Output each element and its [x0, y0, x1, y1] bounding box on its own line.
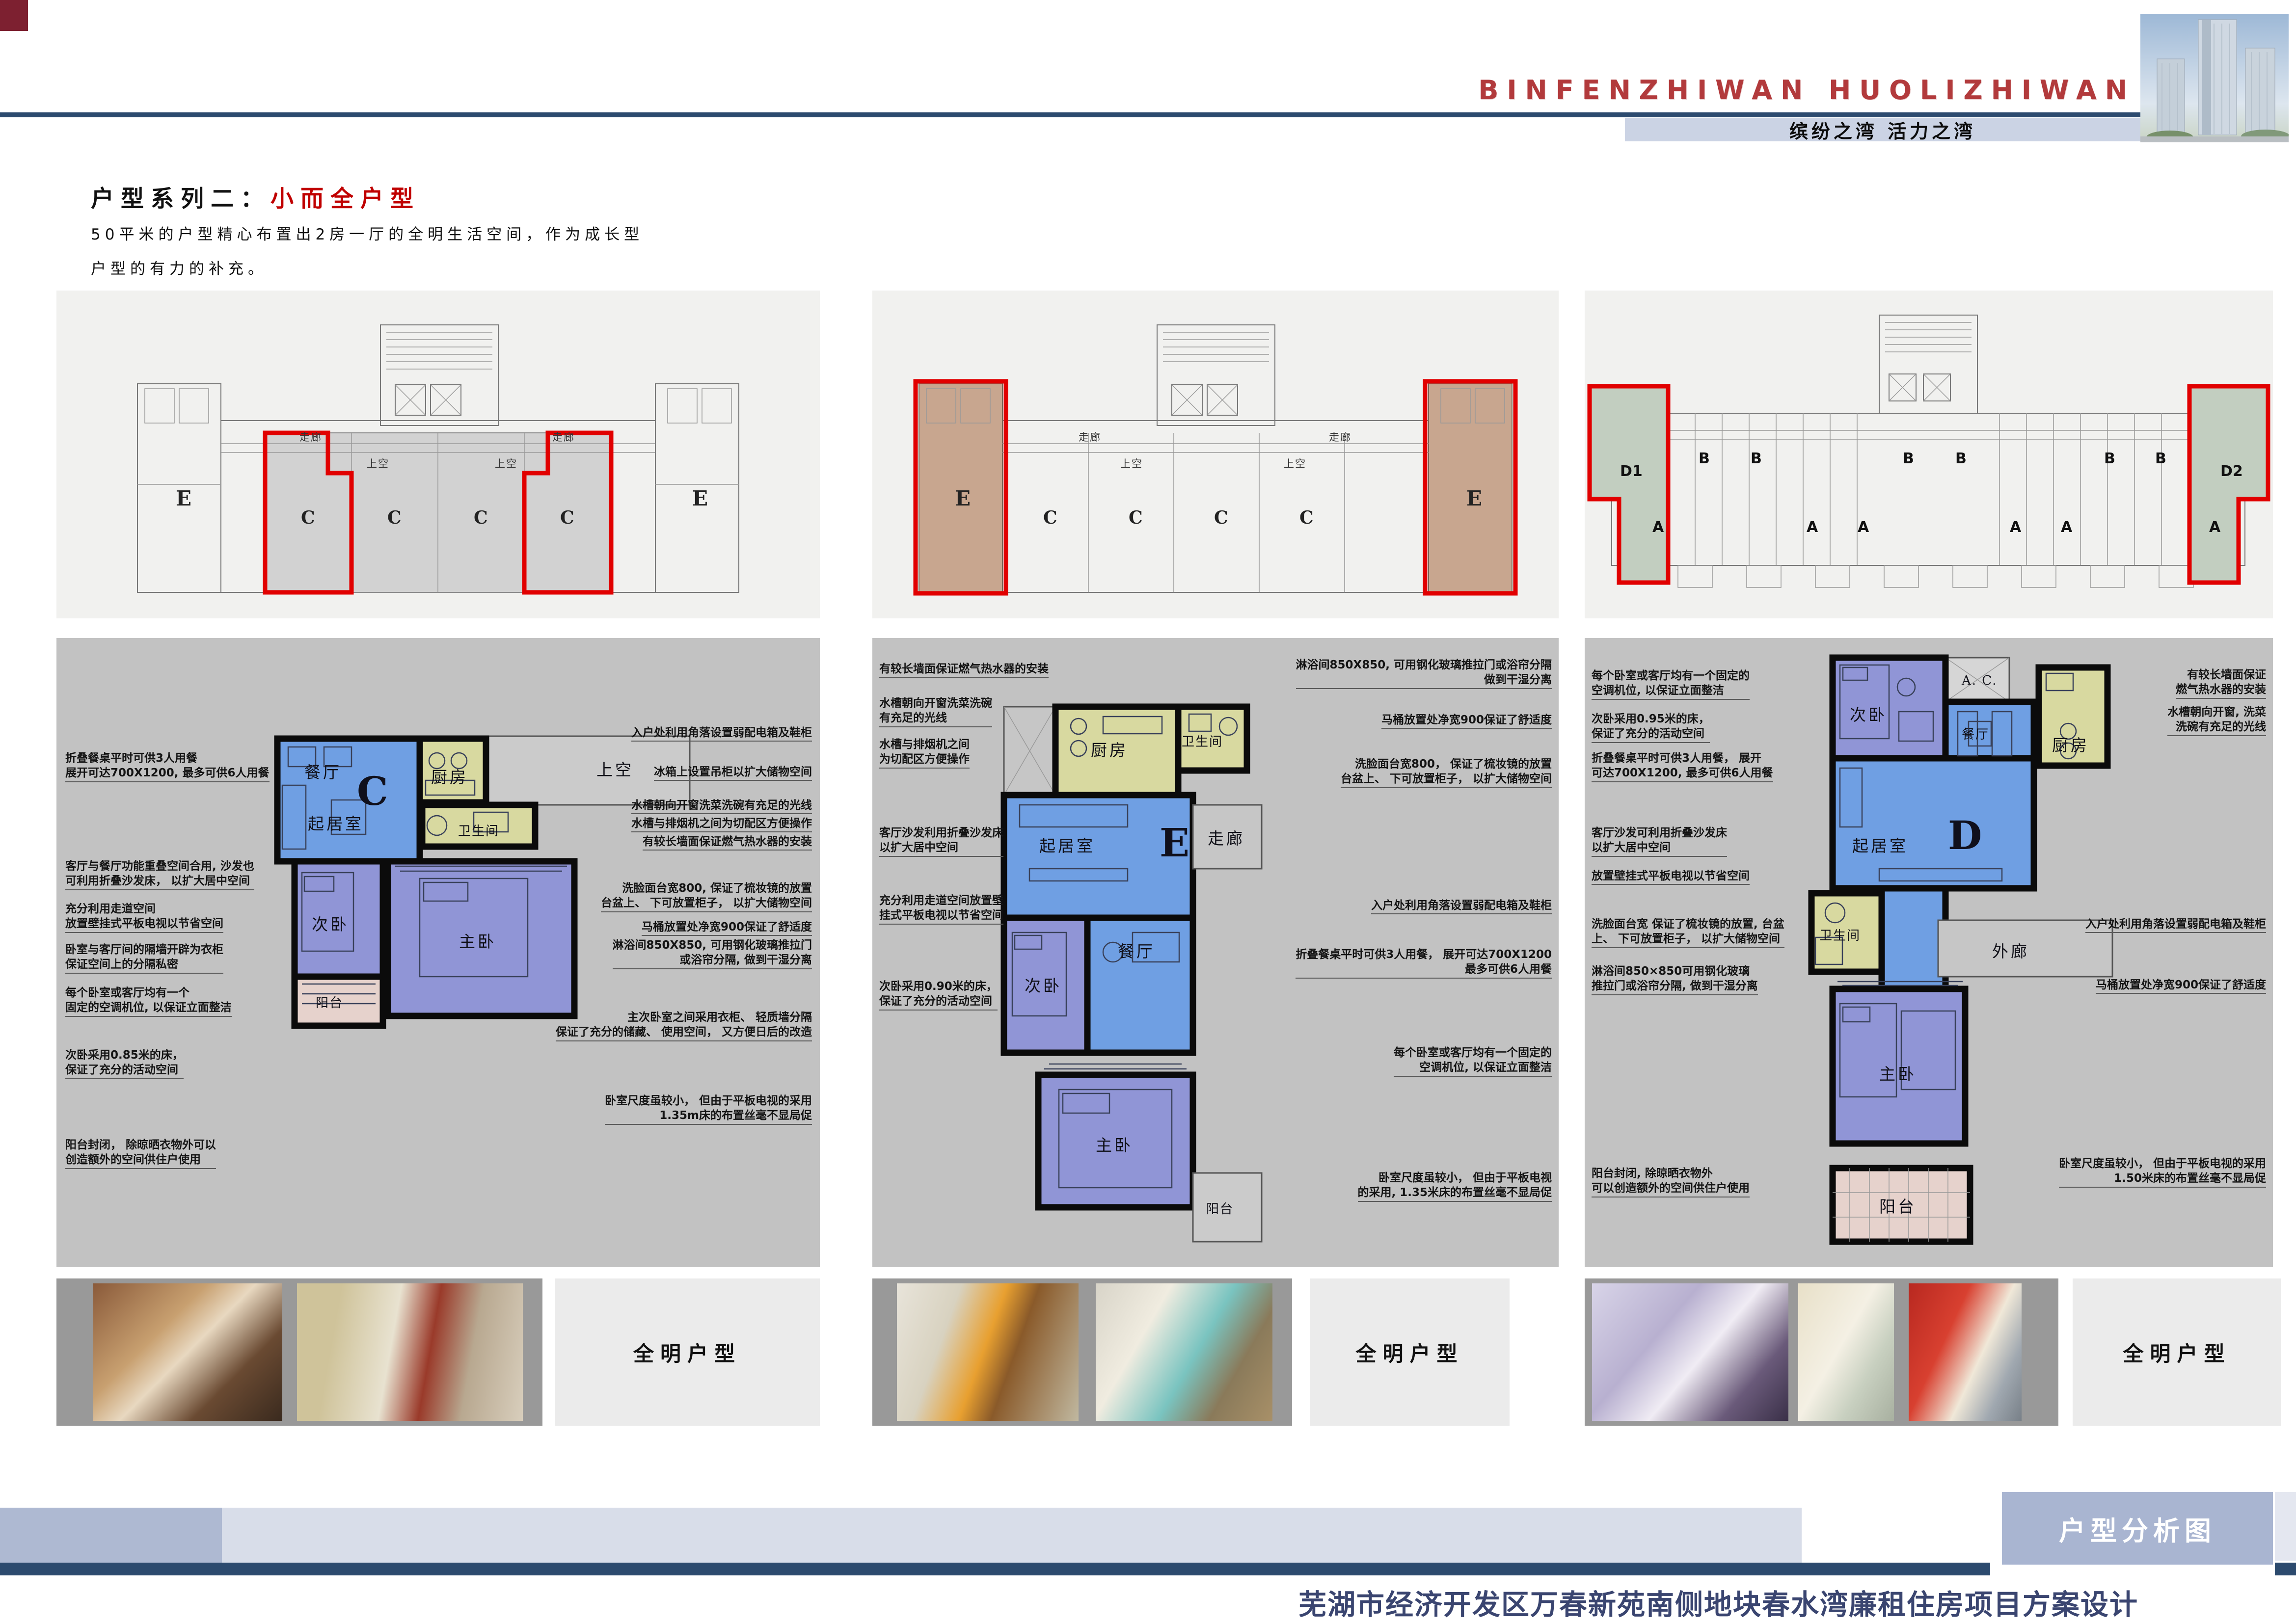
kitchen-photo [1909, 1283, 2022, 1421]
unit-letter: E [955, 486, 971, 510]
unit-letters-b: B B B B B B [1699, 450, 2166, 467]
annotation: 有较长墙面保证燃气热水器的安装 [879, 662, 1049, 678]
highlight-outlines [916, 381, 1515, 593]
room-label-dining: 餐厅 [1962, 727, 1989, 742]
footer-band-light [222, 1508, 1802, 1563]
svg-text:A: A [2209, 519, 2221, 536]
unit-letter-d: D [1948, 812, 1982, 858]
svg-text:B: B [1903, 450, 1914, 467]
room-label-kitchen: 厨房 [431, 768, 468, 787]
annotation: 有较长墙面保证 燃气热水器的安装 [2176, 667, 2266, 699]
void-label: 上空 [1284, 458, 1306, 470]
annotation: 淋浴间850×850可用钢化玻璃 推拉门或浴帘分隔, 做到干湿分离 [1592, 964, 1758, 995]
caption-text: 全明户型 [2123, 1337, 2231, 1367]
annotation: 折叠餐桌平时可供3人用餐， 展开可达700X1200 最多可供6人用餐 [1296, 947, 1552, 979]
void-label: 上空 [495, 458, 517, 470]
title-desc-line2: 户型的有力的补充。 [91, 256, 268, 278]
annotation: 卧室尺度虽较小， 但由于平板电视的采用 1.35m床的布置丝毫不显局促 [605, 1093, 812, 1125]
annotation: 水槽与排烟机之间 为切配区方便操作 [879, 737, 970, 769]
unit-letter: C [1043, 507, 1057, 528]
annotation: 阳台封闭， 除晾晒衣物外可以 创造额外的空间供住户使用 [65, 1138, 216, 1169]
title-highlight: 小而全户型 [270, 186, 420, 213]
dining-partition-photo [897, 1283, 1079, 1421]
annotation: 次卧采用0.90米的床， 保证了充分的活动空间 [879, 979, 998, 1011]
corridor-label: 走廊 [1329, 431, 1351, 443]
title-prefix: 户型系列二： [91, 186, 270, 213]
annotation: 马桶放置处净宽900保证了舒适度 [2096, 978, 2266, 994]
void-label: 上空 [1120, 458, 1143, 470]
annotation: 折叠餐桌平时可供3人用餐 展开可达700X1200, 最多可供6人用餐 [65, 751, 270, 782]
rooms [1004, 707, 1262, 1242]
unit-c-detail-panel: 餐厅 C 起居室 厨房 上空 卫生间 次卧 主卧 阳台 折叠餐桌平时可供3人用餐… [56, 638, 820, 1267]
caption-box: 全明户型 [555, 1278, 820, 1426]
room-label-kitchen: 厨房 [1091, 741, 1128, 760]
svg-text:B: B [1955, 450, 1967, 467]
room-label-dining: 餐厅 [1118, 942, 1155, 961]
annotation: 卧室尺度虽较小， 但由于平板电视的采用 1.50米床的布置丝毫不显局促 [2059, 1156, 2266, 1188]
photo-strip-e [872, 1278, 1292, 1426]
void-label: 上空 [367, 458, 389, 470]
room-label-balcony: 阳台 [1206, 1202, 1234, 1217]
svg-text:B: B [2155, 450, 2166, 467]
corridor-label: 走廊 [1079, 431, 1101, 443]
unit-letter: C [1299, 507, 1314, 528]
void-label: 上空 [596, 760, 634, 779]
unit-letter-c: C [357, 768, 388, 814]
ac-label: A. C. [1961, 673, 1998, 688]
unit-letter: C [474, 507, 488, 528]
caption-box: 全明户型 [2073, 1278, 2281, 1426]
unit-letter-e: E [1160, 820, 1189, 866]
site-plan-c-panel: E C C C C E 走廊 走廊 上空 上空 [56, 291, 820, 618]
caption-text: 全明户型 [1355, 1337, 1463, 1367]
unit-d-detail-panel: 次卧 A. C. 餐厅 厨房 起居室 D 外廊 卫生间 主卧 阳台 每个卧室或客… [1585, 638, 2273, 1267]
annotation: 冰箱上设置吊柜以扩大储物空间 [654, 765, 812, 781]
svg-text:B: B [2104, 450, 2115, 467]
photo-strip-c [56, 1278, 542, 1426]
annotation: 水槽朝向开窗洗菜洗碗有充足的光线 [631, 798, 812, 814]
unit-letters-a: A A A A A A [1652, 519, 2221, 536]
svg-text:B: B [1699, 450, 1710, 467]
washbasin-photo [1798, 1283, 1894, 1421]
annotation: 每个卧室或客厅均有一个固定的 空调机位, 以保证立面整洁 [1394, 1045, 1552, 1077]
room-label-bath: 卫生间 [1182, 735, 1223, 749]
room-label-balcony: 阳台 [316, 996, 343, 1011]
corner-accent [0, 0, 28, 31]
unit-letter: E [1466, 486, 1482, 510]
corridor-label: 走廊 [1208, 829, 1245, 848]
annotation: 入户处利用角落设置弱配电箱及鞋柜 [1371, 898, 1552, 914]
unit-letter: C [1129, 507, 1143, 528]
annotation: 洗脸面台宽 保证了梳妆镜的放置, 台盆 上、 下可放置柜子， 以扩大储物空间 [1592, 917, 1784, 948]
title-desc-line1: 50平米的户型精心布置出2房一厅的全明生活空间，作为成长型 [91, 222, 644, 244]
unit-letter: E [692, 486, 708, 510]
annotation: 阳台封闭, 除晾晒衣物外 可以创造额外的空间供住户使用 [1592, 1166, 1750, 1197]
caption-text: 全明户型 [633, 1337, 741, 1367]
highlight-outlines [1590, 386, 2268, 583]
unit-letter: D1 [1620, 463, 1643, 480]
annotation: 入户处利用角落设置弱配电箱及鞋柜 [2085, 917, 2266, 933]
footer-divider-right [2275, 1563, 2296, 1575]
annotation: 水槽朝向开窗, 洗菜 洗碗有充足的光线 [2167, 705, 2266, 736]
annotation: 次卧采用0.95米的床， 保证了充分的活动空间 [1592, 712, 1710, 743]
footer-band-dark [0, 1508, 222, 1563]
room-label-bed2: 次卧 [312, 915, 349, 934]
footer-tab-label: 户型分析图 [2059, 1509, 2216, 1548]
annotation: 马桶放置处净宽900保证了舒适度 [1381, 713, 1552, 729]
annotation: 充分利用走道空间放置壁 挂式平板电视以节省空间 [879, 893, 1003, 925]
photo-strip-d [1585, 1278, 2058, 1426]
presentation-board: BINFENZHIWAN HUOLIZHIWAN 缤纷之湾 活力之湾 [0, 0, 2296, 1623]
room-label-bath: 卫生间 [1819, 929, 1861, 943]
annotation: 洗脸面台宽800, 保证了梳妆镜的放置 台盆上、 下可放置柜子， 以扩大储物空间 [601, 881, 812, 912]
unit-letter: C [1214, 507, 1228, 528]
svg-text:A: A [1858, 519, 1869, 536]
footer-tab: 户型分析图 [2002, 1492, 2273, 1565]
page-title: 户型系列二：小而全户型 [91, 180, 420, 213]
corridor-label: 走廊 [299, 431, 322, 443]
living-room-photo [1096, 1283, 1272, 1421]
room-label-living: 起居室 [1852, 836, 1908, 855]
room-label-bed1: 主卧 [1879, 1064, 1917, 1084]
tagline-band: 缤纷之湾 活力之湾 [1625, 118, 2140, 141]
caption-box: 全明户型 [1310, 1278, 1510, 1426]
room-label-bed1: 主卧 [1096, 1136, 1133, 1155]
building-rendering [2140, 14, 2289, 142]
site-plan-d: D1 D2 B B B B B B A A A A A A [1585, 291, 2273, 618]
room-label-bath: 卫生间 [458, 824, 499, 839]
room-label-bed2: 次卧 [1850, 705, 1887, 724]
annotation: 淋浴间850X850, 可用钢化玻璃推拉门 或浴帘分隔, 做到干湿分离 [613, 938, 812, 969]
unit-letter: D2 [2220, 463, 2243, 480]
annotation: 淋浴间850X850, 可用钢化玻璃推拉门或浴帘分隔 做到干湿分离 [1296, 658, 1552, 689]
corridor-photo [1592, 1283, 1788, 1421]
room-label-bed2: 次卧 [1025, 976, 1062, 995]
footer-divider [0, 1563, 1990, 1575]
annotation: 马桶放置处净宽900保证了舒适度 [642, 920, 812, 936]
annotation: 放置壁挂式平板电视以节省空间 [1592, 869, 1750, 885]
site-plan-c: E C C C C E 走廊 走廊 上空 上空 [56, 291, 820, 618]
annotation: 每个卧室或客厅均有一个固定的 空调机位, 以保证立面整洁 [1592, 668, 1750, 700]
annotation: 折叠餐桌平时可供3人用餐， 展开 可达700X1200, 最多可供6人用餐 [1592, 751, 1773, 782]
annotation: 有较长墙面保证燃气热水器的安装 [643, 834, 812, 851]
footer-tab-side [2275, 1492, 2296, 1561]
room-label-dining: 餐厅 [304, 763, 342, 782]
project-title: 芜湖市经济开发区万春新苑南侧地块春水湾廉租住房项目方案设计 [1298, 1582, 2138, 1623]
room-label-balcony: 阳台 [1879, 1197, 1917, 1216]
site-plan-e: E C C C C E 走廊 走廊 上空 上空 [872, 291, 1559, 618]
bedroom-hallway-photo [297, 1283, 523, 1421]
annotation: 入户处利用角落设置弱配电箱及鞋柜 [631, 725, 812, 742]
room-label-living: 起居室 [308, 814, 364, 833]
outer-corridor-label: 外廊 [1992, 942, 2029, 961]
room-label-living: 起居室 [1039, 836, 1095, 855]
annotation: 水槽朝向开窗洗菜洗碗 有充足的光线 [879, 696, 992, 727]
annotation: 水槽与排烟机之间为切配区方便操作 [631, 816, 812, 832]
svg-text:A: A [1652, 519, 1664, 536]
project-logo: BINFENZHIWAN HUOLIZHIWAN [1478, 75, 2135, 106]
svg-text:A: A [2010, 519, 2022, 536]
bedroom-photo [93, 1283, 282, 1421]
building-outline [137, 325, 739, 592]
svg-text:A: A [2061, 519, 2073, 536]
corridor-label: 走廊 [552, 431, 575, 443]
annotation: 主次卧室之间采用衣柜、 轻质墙分隔 保证了充分的储藏、 使用空间， 又方便日后的… [556, 1010, 812, 1041]
annotation: 客厅与餐厅功能重叠空间合用, 沙发也 可利用折叠沙发床， 以扩大居中空间 [65, 859, 254, 890]
annotation: 洗脸面台宽800， 保证了梳妆镜的放置 台盆上、 下可放置柜子， 以扩大储物空间 [1341, 757, 1552, 788]
unit-e-detail-panel: 厨房 卫生间 起居室 E 走廊 次卧 餐厅 主卧 阳台 有较长墙面保证燃气热水器… [872, 638, 1559, 1267]
tagline-text: 缤纷之湾 活力之湾 [1789, 116, 1976, 143]
annotation: 客厅沙发利用折叠沙发床 以扩大居中空间 [879, 825, 1003, 857]
building-photo [2140, 14, 2289, 142]
annotation: 次卧采用0.85米的床， 保证了充分的活动空间 [65, 1048, 184, 1079]
annotation: 客厅沙发可利用折叠沙发床 以扩大居中空间 [1592, 825, 1727, 857]
annotation: 卧室与客厅间的隔墙开辟为衣柜 保证空间上的分隔私密 [65, 942, 223, 974]
annotation: 每个卧室或客厅均有一个 固定的空调机位, 以保证立面整洁 [65, 985, 232, 1017]
svg-text:A: A [1807, 519, 1818, 536]
annotation: 充分利用走道空间 放置壁挂式平板电视以节省空间 [65, 902, 223, 933]
unit-letter: E [176, 486, 191, 510]
unit-letter: C [301, 507, 315, 528]
room-label-kitchen: 厨房 [2052, 736, 2089, 755]
room-label-bed1: 主卧 [459, 932, 496, 951]
annotation: 卧室尺度虽较小， 但由于平板电视 的采用, 1.35米床的布置丝毫不显局促 [1358, 1171, 1552, 1202]
unit-letter: C [387, 507, 402, 528]
site-plan-d-panel: D1 D2 B B B B B B A A A A A A [1585, 291, 2273, 618]
site-plan-e-panel: E C C C C E 走廊 走廊 上空 上空 [872, 291, 1559, 618]
unit-letter: C [560, 507, 574, 528]
svg-text:B: B [1751, 450, 1762, 467]
